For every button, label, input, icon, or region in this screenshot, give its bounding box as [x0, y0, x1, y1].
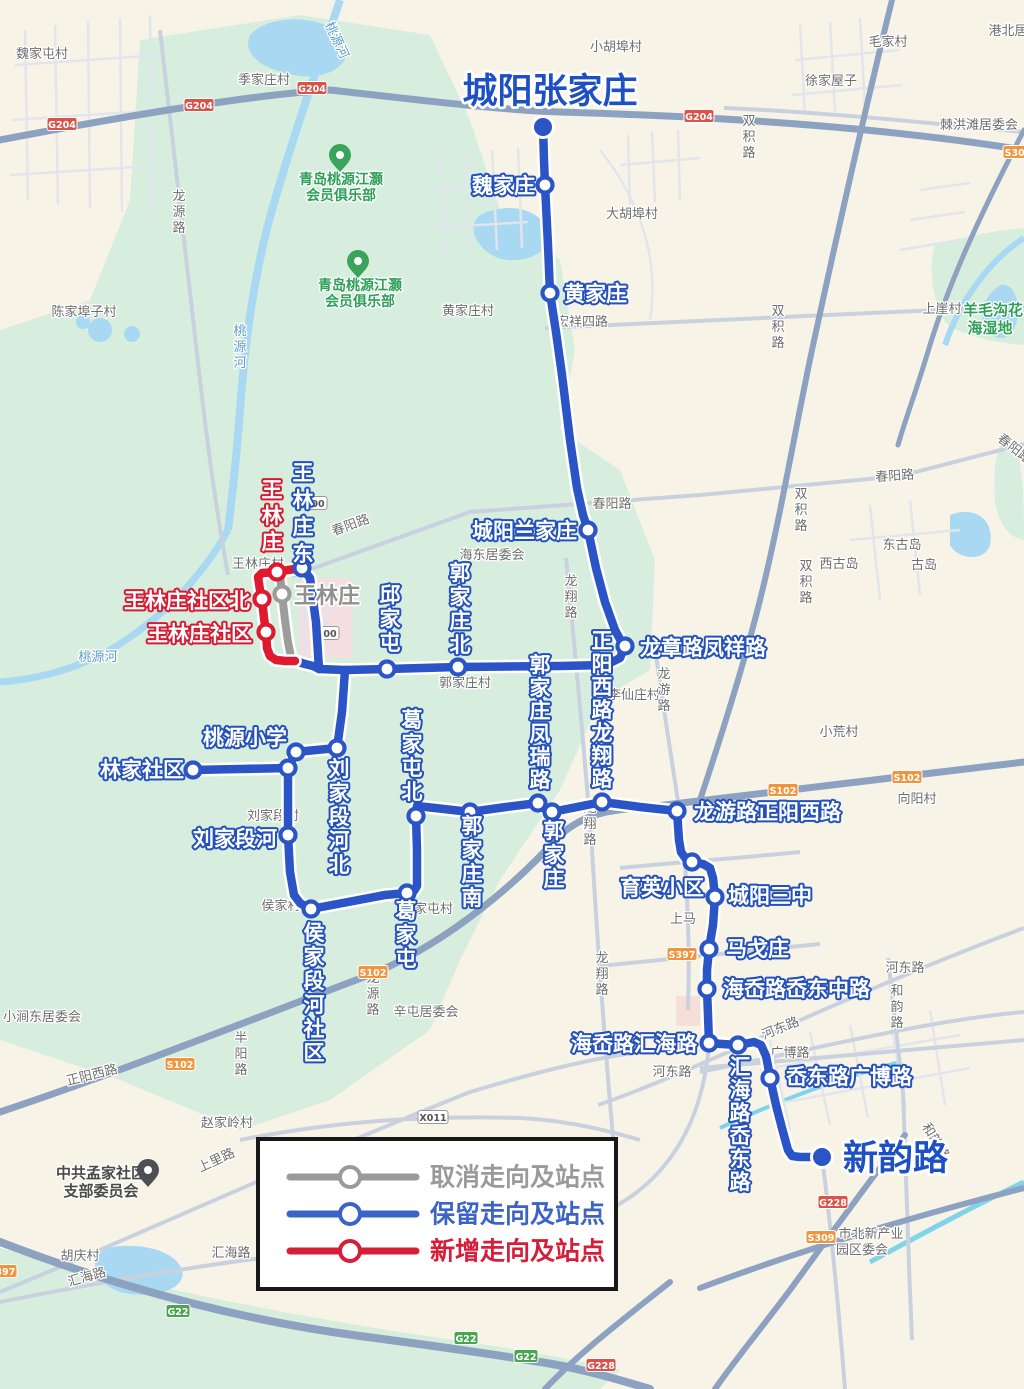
road-shield: S102 — [165, 1058, 195, 1071]
stop-label: 龙游路正阳西路 — [694, 800, 842, 824]
stop-label: 葛家屯北 — [402, 708, 424, 804]
road-shield: G228 — [818, 1196, 848, 1209]
map-place-label: 海湿地 — [967, 319, 1012, 337]
road-shield-text: G204 — [48, 120, 76, 131]
terminal-stop-marker — [533, 117, 554, 138]
stop-marker — [255, 592, 270, 607]
map-place-label: 向阳村 — [897, 791, 936, 807]
stop-label: 城阳兰家庄 — [472, 519, 577, 543]
road-shield: G228 — [586, 1359, 616, 1372]
stop-marker — [595, 795, 610, 810]
stop-label: 王林庄社区北 — [124, 589, 250, 613]
stop-label: 龙章路凤祥路 — [640, 636, 767, 660]
stop-label: 海岙路岙东中路 — [723, 977, 871, 1001]
map-place-label: 辛屯居委会 — [393, 1005, 458, 1020]
road-shield: G22 — [514, 1350, 538, 1363]
stop-label: 王林庄社区 — [147, 622, 252, 646]
road-shield-text: S309 — [1005, 148, 1024, 159]
road-shield-text: S309 — [808, 1233, 835, 1244]
map-place-label: 广博路 — [770, 1045, 809, 1061]
stop-marker — [409, 809, 424, 824]
map-place-label: 西古岛 — [819, 556, 858, 572]
map-place-label: 青岛桃源江灏 — [299, 171, 383, 188]
map-place-label: 古岛 — [911, 557, 937, 573]
road-shield-text: S397 — [669, 950, 696, 961]
stop-label: 魏家庄 — [471, 174, 535, 198]
road-shield-text: X011 — [419, 1113, 446, 1124]
map-place-label: 东古岛 — [882, 537, 921, 553]
terminal-stop-marker — [812, 1147, 833, 1168]
road-shield: X011 — [418, 1111, 448, 1124]
legend-label: 保留走向及站点 — [429, 1200, 605, 1229]
legend-stop-sample — [340, 1241, 360, 1261]
road-shield: G204 — [47, 118, 77, 131]
stop-label: 育英小区 — [620, 876, 704, 900]
route-title-label: 新韵路 — [843, 1139, 949, 1179]
road-shield-text: S397 — [0, 1267, 15, 1278]
map-place-label: 上崖村 — [922, 302, 961, 317]
map-place-label: 大胡埠村 — [606, 207, 658, 222]
stop-label: 郭家庄 — [544, 819, 566, 891]
stop-label: 王林庄 — [294, 583, 360, 609]
stop-label: 岙东路广博路 — [786, 1065, 913, 1089]
map-place-label: 龙翔路 — [564, 574, 577, 621]
stop-label: 侯家段河社区 — [303, 921, 326, 1065]
road-shield-text: G22 — [167, 1307, 188, 1318]
legend-stop-sample — [340, 1167, 360, 1187]
map-place-label: 桃源河 — [233, 324, 246, 371]
stop-label: 桃源小学 — [203, 726, 287, 750]
map-place-label: 桃源河 — [78, 650, 117, 665]
stop-label: 马戈庄 — [726, 937, 789, 961]
stop-label: 黄家庄 — [564, 282, 627, 306]
map-place-label: 河东路 — [652, 1064, 691, 1080]
map-place-label: 园区委会 — [836, 1243, 888, 1258]
road-shield: S102 — [358, 966, 388, 979]
stop-label: 葛家屯 — [396, 899, 418, 971]
stop-marker — [702, 1036, 717, 1051]
map-place-label: 小涧东居委会 — [3, 1010, 81, 1025]
map-place-label: 小胡埠村 — [590, 40, 642, 55]
stop-label: 林家社区 — [100, 758, 184, 782]
map-canvas: 魏家屯村季家庄村小胡埠村毛家村徐家屋子港北居棘洪滩居委会羊毛沟花海湿地青岛桃源江… — [0, 0, 1024, 1389]
stop-marker — [451, 660, 466, 675]
stop-marker — [543, 286, 558, 301]
map-place-label: 胡庆村 — [60, 1249, 99, 1264]
map-place-label: 龙翔路 — [595, 951, 608, 998]
map-place-label: 郭家庄村 — [439, 675, 491, 691]
stop-label: 海岙路汇海路 — [571, 1032, 698, 1056]
stop-marker — [186, 763, 201, 778]
road-shield: G204 — [184, 99, 214, 112]
map-place-label: 港北居 — [988, 24, 1024, 39]
map-place-label: 毛家村 — [868, 34, 907, 50]
stop-marker — [685, 855, 700, 870]
map-place-label: 春阳路 — [875, 467, 915, 486]
map-place-label: 双积路 — [799, 559, 812, 606]
stop-marker — [763, 1071, 778, 1086]
map-place-label: 龙游路 — [657, 667, 670, 714]
map-place-label: 中共孟家社区 — [56, 1164, 146, 1182]
stop-label: 汇海路岙东路 — [730, 1055, 752, 1194]
road-shield-text: G22 — [515, 1352, 536, 1363]
stop-label: 郭家庄凤瑞路 — [530, 653, 552, 792]
stop-marker — [270, 565, 285, 580]
stop-marker — [330, 741, 345, 756]
stop-marker — [708, 890, 723, 905]
road-shield-text: 00 — [323, 629, 337, 640]
map-place-label: 双积路 — [771, 304, 784, 351]
route-line — [193, 768, 288, 770]
road-shield: G22 — [454, 1332, 478, 1345]
stop-label: 刘家段河北 — [329, 757, 351, 877]
map-place-label: 会员俱乐部 — [325, 293, 395, 310]
road-shield: G204 — [684, 110, 714, 123]
map-place-label: 魏家屯村 — [16, 46, 68, 62]
bus-route-map: 魏家屯村季家庄村小胡埠村毛家村徐家屋子港北居棘洪滩居委会羊毛沟花海湿地青岛桃源江… — [0, 0, 1024, 1389]
legend-label: 新增走向及站点 — [430, 1237, 605, 1266]
stop-marker — [702, 942, 717, 957]
stop-marker — [731, 1038, 746, 1053]
map-place-label: 小荒村 — [819, 725, 858, 740]
road-shield-text: G204 — [185, 101, 213, 112]
stop-marker — [275, 587, 290, 602]
map-place-label: 上马 — [670, 912, 696, 927]
map-place-label: 春阳路 — [592, 496, 631, 512]
stop-label: 王林庄 — [262, 478, 283, 554]
map-place-label: 和韵路 — [890, 984, 903, 1031]
stop-label: 正阳西路龙翔路 — [592, 629, 614, 791]
road-shield-text: G22 — [455, 1334, 476, 1345]
stop-marker — [545, 805, 560, 820]
map-place-label: 徐家屋子 — [805, 73, 857, 89]
route-title-label: 城阳张家庄 — [462, 72, 637, 112]
road-shield-text: S102 — [894, 773, 921, 784]
road-shield-text: S102 — [770, 786, 797, 797]
map-place-label: 赵家岭村 — [201, 1115, 253, 1131]
road-shield-text: S102 — [167, 1060, 194, 1071]
stop-marker — [304, 902, 319, 917]
road-shield-text: G204 — [685, 112, 713, 123]
map-place-label: 会员俱乐部 — [306, 187, 376, 204]
road-shield: S397 — [0, 1265, 17, 1278]
map-place-label: 半阳路 — [234, 1031, 247, 1078]
map-place-label: 棘洪滩居委会 — [940, 118, 1018, 133]
stop-label: 邱家屯 — [380, 583, 402, 655]
stop-label: 郭家庄南 — [462, 814, 484, 910]
road-shield-text: G204 — [298, 84, 326, 95]
legend-rows-layer: 取消走向及站点保留走向及站点新增走向及站点 — [290, 1163, 605, 1266]
road-shield: G22 — [166, 1305, 190, 1318]
stop-marker — [259, 625, 274, 640]
stop-marker — [538, 178, 553, 193]
stop-marker — [700, 982, 715, 997]
stop-label: 郭家庄北 — [450, 561, 472, 657]
stop-label: 城阳三中 — [728, 884, 812, 908]
map-place-label: 羊毛沟花 — [963, 301, 1023, 319]
road-shield: S309 — [1003, 146, 1024, 159]
map-place-label: 河东路 — [885, 960, 924, 976]
legend-stop-sample — [340, 1204, 360, 1224]
road-shield: G204 — [297, 82, 327, 95]
map-place-label: 黄家庄村 — [442, 303, 494, 319]
legend-label: 取消走向及站点 — [430, 1163, 605, 1192]
map-place-label: 青岛桃源江灏 — [318, 277, 402, 294]
stop-marker — [289, 745, 304, 760]
map-place-label: 市北新产业 — [838, 1226, 903, 1242]
stop-marker — [670, 804, 685, 819]
map-place-label: 汇海路 — [211, 1245, 250, 1261]
road-shield: S397 — [667, 948, 697, 961]
map-place-label: 季家庄村 — [238, 72, 290, 88]
map-place-label: 陈家埠子村 — [51, 304, 116, 320]
map-place-label: 双积路 — [794, 487, 807, 534]
stop-label: 刘家段河 — [193, 827, 277, 851]
stop-marker — [281, 761, 296, 776]
map-place-label: 龙源路 — [172, 189, 185, 236]
map-place-label: 支部委员会 — [62, 1182, 138, 1200]
stop-marker — [281, 828, 296, 843]
road-shield: S102 — [892, 771, 922, 784]
road-shield: S102 — [768, 784, 798, 797]
stop-marker — [581, 523, 596, 538]
road-shield-text: G228 — [819, 1198, 847, 1209]
map-place-label: 李仙庄村 — [608, 687, 660, 703]
map-place-label: 宏祥四路 — [556, 314, 608, 330]
road-shield-text: S102 — [360, 968, 387, 979]
stop-marker — [618, 639, 633, 654]
road-shield: S309 — [806, 1231, 836, 1244]
stop-marker — [380, 662, 395, 677]
road-shield-text: G228 — [587, 1361, 615, 1372]
map-place-label: 双积路 — [742, 114, 755, 161]
